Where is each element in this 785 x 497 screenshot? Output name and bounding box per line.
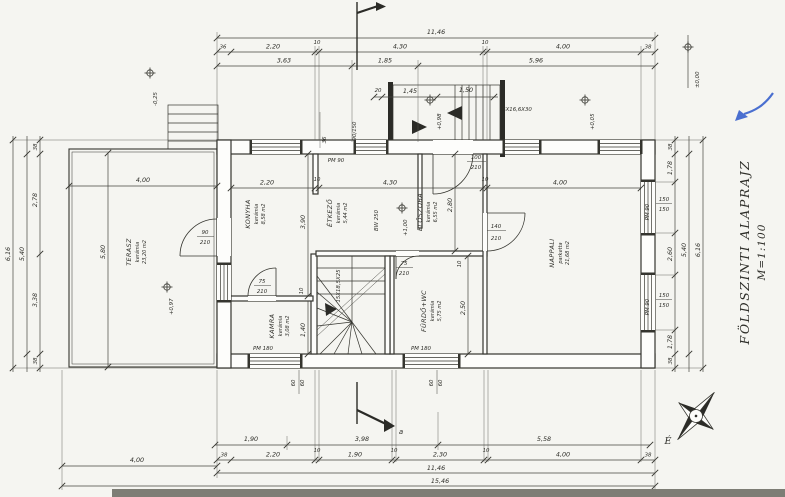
dim-botc-10c: 10: [483, 448, 490, 454]
elevation-plus-098: +0,98: [437, 113, 443, 130]
dimensions-left: 6,16 5,40 38 2,78 3,38 38: [4, 136, 217, 372]
room-etkezo: ÉTKEZŐ kerámia 5,44 m2: [325, 199, 349, 227]
dim-int-430: 4,30: [383, 179, 397, 187]
room-terasz: TERASZ kerámia 23,20 m2: [125, 238, 148, 266]
window-150-r2b: 150: [659, 303, 670, 309]
porch-direction-arrow-2: [447, 106, 462, 120]
dim-bot-190: 1,90: [244, 435, 258, 443]
dim-botc-38b: 38: [645, 453, 652, 459]
dim-porch-150: 1,50: [459, 86, 473, 94]
room-kamra-finish: kerámia: [277, 316, 284, 336]
door-terrace-height: 210: [200, 240, 211, 246]
room-konyha-name: KONYHA: [244, 199, 252, 228]
elevation-minus-025: -0,25: [153, 91, 159, 106]
dim-top-185: 1,85: [378, 57, 392, 65]
room-kamra-area: 3,08 m2: [285, 316, 291, 337]
porch-direction-arrow: [412, 120, 427, 134]
dim-terrace-inner: 4,00: [136, 176, 150, 184]
dim-right-total: 6,16: [694, 243, 702, 257]
room-etkezo-finish: kerámia: [335, 203, 342, 223]
dim-right-260: 2,60: [666, 247, 674, 261]
dimensions-bottom: 1,90 3,98 5,58 38 2,20 10 1,90 10 2,30 1…: [59, 370, 658, 490]
sill-60-a1: 60: [291, 379, 297, 386]
dim-left-38a: 38: [33, 143, 39, 150]
dim-top-220: 2,20: [266, 43, 280, 51]
door-living-height: 210: [491, 236, 502, 242]
dim-top-400: 4,00: [556, 43, 570, 51]
window-parapet-right2: PM 90: [645, 298, 651, 315]
floor-plan-scan: 20 1,45 1,50 6X16,6X30: [0, 0, 785, 497]
compass-rose: É: [660, 379, 732, 453]
window-150-r2a: 150: [659, 293, 670, 299]
sill-60-b2: 60: [438, 379, 444, 386]
room-nappali: NAPPALI parketta 21,68 m2: [548, 238, 571, 267]
room-terasz-finish: kerámia: [134, 242, 141, 262]
dim-pantry-wall: 10: [299, 287, 305, 294]
room-konyha: KONYHA kerámia 8,58 m2: [244, 199, 267, 228]
dim-right-178a: 1,78: [666, 161, 674, 175]
dimensions-right: 38 1,78 2,60 1,78 38 5,40 6,16: [655, 136, 706, 372]
dim-terrace-depth: 5,80: [99, 245, 107, 259]
room-nappali-area: 21,68 m2: [565, 241, 571, 265]
internal-stair-formula: 15X18,5X25: [336, 269, 342, 303]
window-150-r1a: 150: [659, 197, 670, 203]
north-label: É: [664, 435, 672, 447]
drawing-title: FÖLDSZINTI ALAPRAJZ: [736, 160, 752, 346]
room-kamra-name: KAMRA: [268, 314, 276, 339]
dim-top-596: 5,96: [529, 57, 543, 65]
dim-botc-230: 2,30: [433, 451, 447, 459]
dim-botc-38a: 38: [221, 453, 228, 459]
dim-top-10a: 10: [314, 40, 321, 46]
sill-60-a2: 60: [300, 379, 306, 386]
elevation-plus-097: +0,97: [169, 298, 175, 315]
dim-bot-558: 5,58: [537, 435, 551, 443]
title-block: FÖLDSZINTI ALAPRAJZ M=1:100: [736, 160, 768, 346]
internal-stair: 15X18,5X25: [317, 256, 385, 354]
door-bath-width: 75: [401, 261, 408, 267]
dim-left-inner: 5,40: [18, 247, 26, 261]
dim-hall-depth: 2,80: [446, 198, 454, 212]
dim-botc-220: 2,20: [266, 451, 280, 459]
dim-porch-145: 1,45: [403, 87, 417, 95]
window-parapet-right1: PM 90: [645, 203, 651, 220]
room-etkezo-name: ÉTKEZŐ: [325, 199, 334, 227]
room-eloszoba-name: ELŐSZOBA: [415, 193, 424, 231]
floor-plan-drawing: 20 1,45 1,50 6X16,6X30: [0, 0, 785, 497]
door-terrace-width: 90: [202, 230, 209, 236]
dim-bot-398: 3,98: [355, 435, 369, 443]
dim-wall-36: 36: [322, 136, 328, 143]
dim-right-inner: 5,40: [680, 243, 688, 257]
dim-bot-overall: 15,46: [431, 477, 449, 485]
stair-direction-arrow: [325, 303, 337, 316]
dim-top-36: 36: [220, 45, 227, 51]
room-eloszoba: ELŐSZOBA kerámia 6,55 m2: [415, 193, 439, 231]
window-parapet-top: PM 90: [328, 158, 345, 164]
elevation-plus-100: +1,00: [403, 219, 409, 236]
door-front-width: 100: [471, 155, 482, 161]
dim-int-400: 4,00: [553, 179, 567, 187]
room-furdo-finish: kerámia: [429, 301, 436, 321]
window-size-top: 90/150: [352, 121, 358, 141]
room-terasz-area: 23,20 m2: [142, 240, 148, 264]
dim-top-430: 4,30: [393, 43, 407, 51]
dim-hall-wall: 10: [457, 260, 463, 267]
dim-botc-190: 1,90: [348, 451, 362, 459]
dim-botc-10a: 10: [314, 448, 321, 454]
dim-right-178b: 1,78: [666, 335, 674, 349]
window-parapet-bath: PM 180: [411, 346, 431, 352]
section-line: a: [357, 2, 403, 436]
door-pantry-height: 210: [257, 289, 268, 295]
dim-int-10b: 10: [482, 177, 489, 183]
terrace-steps: [168, 105, 218, 149]
dim-int-220: 2,20: [260, 179, 274, 187]
exterior-stair-formula: 6X16,6X30: [502, 107, 532, 113]
dim-top-10b: 10: [482, 40, 489, 46]
door-living-width: 140: [491, 224, 502, 230]
dim-top-38: 38: [645, 45, 652, 51]
room-furdo: FÜRDŐ+WC kerámia 5,75 m2: [419, 290, 443, 332]
room-furdo-name: FÜRDŐ+WC: [419, 290, 428, 332]
dim-botc-10b: 10: [391, 448, 398, 454]
dim-pantry-depth: 1,40: [299, 323, 307, 337]
elevation-plus-005: +0,05: [590, 113, 596, 130]
wall-right: [641, 140, 655, 368]
dim-kitchen-depth: 3,90: [299, 215, 307, 229]
room-konyha-area: 8,58 m2: [261, 204, 267, 225]
door-pantry-width: 75: [259, 279, 266, 285]
room-eloszoba-area: 6,55 m2: [433, 202, 439, 223]
room-etkezo-area: 5,44 m2: [343, 203, 349, 224]
dim-bot-total: 11,46: [427, 464, 445, 472]
section-arrow-top: [376, 2, 386, 11]
dim-right-38b: 38: [668, 357, 674, 364]
window-parapet-pantry: PM 180: [253, 346, 273, 352]
porch-dimensions: 20 1,45 1,50 6X16,6X30: [371, 86, 533, 113]
dim-left-38b: 38: [33, 357, 39, 364]
room-furdo-area: 5,75 m2: [437, 301, 443, 322]
opening-labels: 90 210 75 210 75 210 100 210 140 210 PM …: [197, 121, 672, 394]
drawing-scale: M=1:100: [756, 224, 768, 282]
beam-label: BW 250: [374, 209, 380, 231]
scan-edge-band: [112, 489, 785, 497]
room-terasz-name: TERASZ: [125, 238, 133, 266]
dim-left-total: 6,16: [4, 247, 12, 261]
room-nappali-name: NAPPALI: [548, 238, 556, 267]
sill-60-b1: 60: [429, 379, 435, 386]
dim-top-363: 3,63: [277, 57, 291, 65]
room-nappali-finish: parketta: [558, 242, 564, 264]
door-front-height: 210: [471, 165, 482, 171]
elevation-zero: ±0,00: [695, 71, 701, 88]
dim-right-38a: 38: [668, 143, 674, 150]
dim-terrace-width: 4,00: [130, 456, 144, 464]
dim-bath-depth: 2,50: [459, 301, 467, 315]
dim-top-total: 11,46: [427, 28, 445, 36]
dim-left-338: 3,38: [31, 293, 39, 307]
room-eloszoba-finish: kerámia: [425, 202, 432, 222]
section-label: a: [399, 428, 403, 436]
room-kamra: KAMRA kerámia 3,08 m2: [268, 314, 291, 339]
dim-porch-20: 20: [375, 88, 382, 94]
dim-botc-400: 4,00: [556, 451, 570, 459]
window-150-r1b: 150: [659, 207, 670, 213]
room-konyha-finish: kerámia: [253, 204, 260, 224]
section-arrow-bottom: [384, 419, 395, 432]
blue-pen-arrow: [735, 93, 773, 121]
dim-left-278: 2,78: [31, 193, 39, 207]
dim-int-10a: 10: [314, 177, 321, 183]
door-bath-height: 210: [399, 271, 410, 277]
